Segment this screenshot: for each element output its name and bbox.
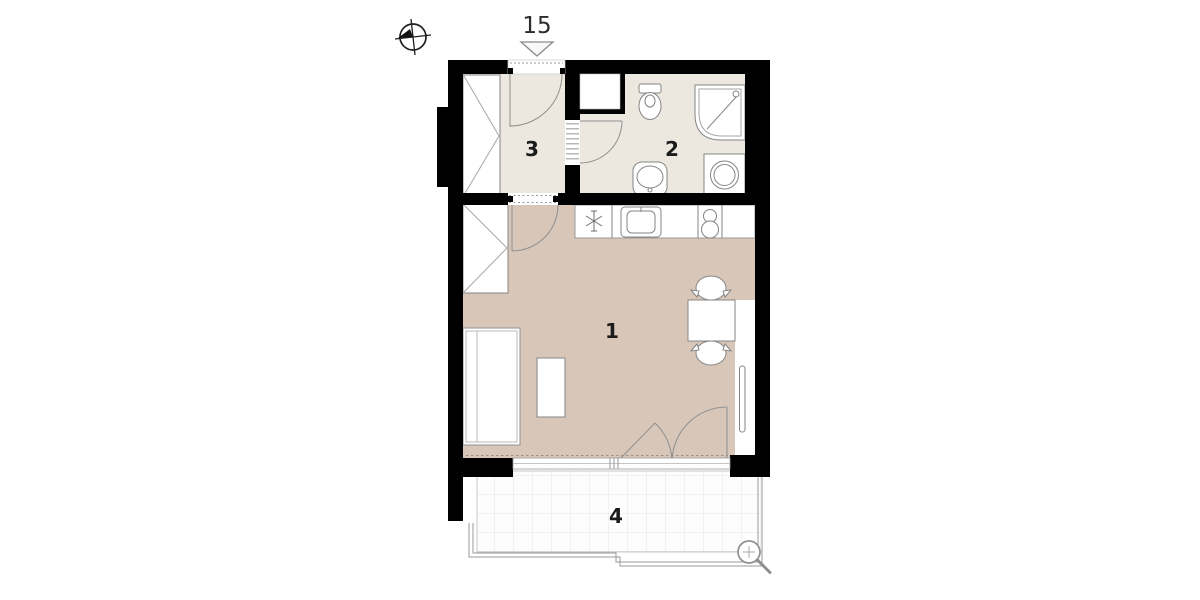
entrance-arrow-icon	[521, 42, 553, 56]
dining-table	[688, 300, 735, 341]
living-wardrobe	[463, 204, 508, 293]
wall-bath-living	[558, 193, 770, 205]
entrance-unit-label: 15	[522, 13, 551, 39]
hall-living-threshold	[508, 193, 558, 205]
wall-right-living	[755, 205, 770, 457]
washbasin	[633, 162, 667, 196]
floor-plan	[0, 0, 1200, 600]
kitchen-sink	[621, 207, 661, 237]
toilet	[639, 84, 661, 120]
wall-bottom-right	[730, 455, 770, 477]
wall-left	[448, 60, 463, 521]
washing-machine	[704, 154, 745, 196]
radiator	[740, 366, 746, 432]
room-label-3: 3	[525, 137, 539, 161]
wall-bottom-left	[463, 458, 513, 477]
side-table	[537, 358, 565, 417]
wall-top-right	[565, 60, 770, 74]
room-label-4: 4	[609, 504, 623, 528]
installation-shaft	[580, 74, 620, 109]
zoom-icon[interactable]	[738, 541, 770, 573]
room-label-2: 2	[665, 137, 679, 161]
hall-wardrobe	[463, 75, 500, 196]
floor-plan-page: 15 1 2 3 4	[0, 0, 1200, 600]
kitchen-counter	[575, 205, 755, 238]
wall-left-pilaster	[437, 107, 448, 187]
wall-hall-bath-upper	[565, 60, 580, 120]
bed	[463, 328, 520, 445]
wall-hall-living	[448, 193, 508, 205]
room-label-1: 1	[605, 319, 619, 343]
north-compass-icon	[395, 19, 431, 55]
wall-right-bath	[745, 60, 770, 195]
shower	[695, 85, 745, 140]
entrance-threshold	[508, 60, 565, 74]
